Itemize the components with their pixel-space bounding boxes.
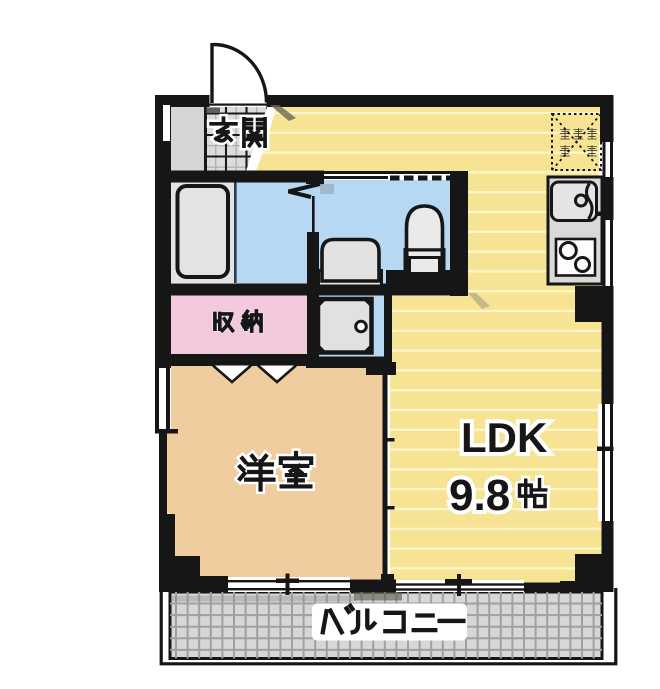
svg-text:LDK: LDK [461,414,547,461]
svg-text:9.8: 9.8 [449,471,510,520]
